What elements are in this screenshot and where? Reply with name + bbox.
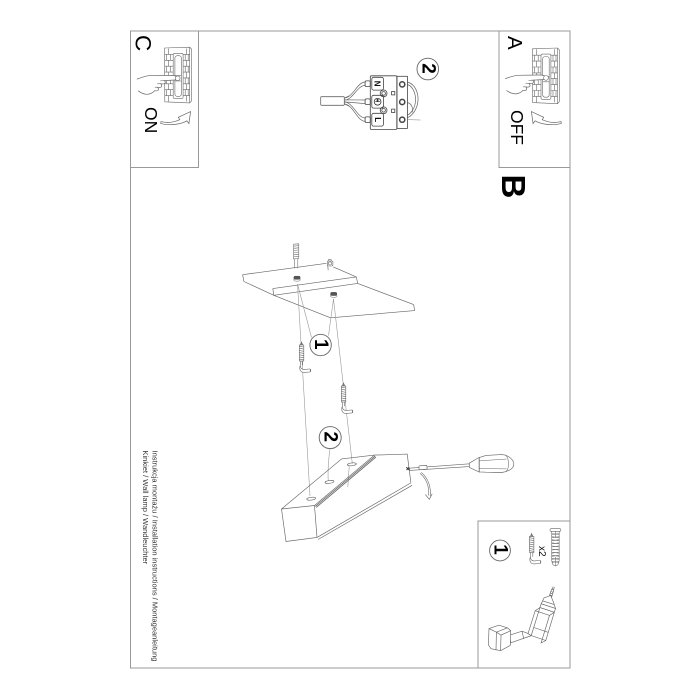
- svg-text:OFF: OFF: [507, 110, 527, 145]
- svg-text:C: C: [131, 35, 156, 51]
- svg-text:Instrukcja montażu / Installat: Instrukcja montażu / Installation instru…: [150, 451, 159, 662]
- svg-text:A: A: [503, 36, 526, 50]
- svg-text:N: N: [373, 81, 382, 87]
- svg-text:1: 1: [310, 339, 331, 350]
- svg-text:x2: x2: [536, 546, 547, 557]
- svg-text:2: 2: [320, 432, 341, 443]
- svg-text:B: B: [495, 175, 532, 199]
- svg-text:2: 2: [417, 63, 438, 74]
- svg-text:ON: ON: [141, 107, 161, 133]
- svg-text:Kinkiet / Wall lamp / Wandleuc: Kinkiet / Wall lamp / Wandleuchter: [141, 451, 150, 565]
- svg-text:1: 1: [490, 544, 511, 555]
- svg-text:L: L: [373, 117, 382, 122]
